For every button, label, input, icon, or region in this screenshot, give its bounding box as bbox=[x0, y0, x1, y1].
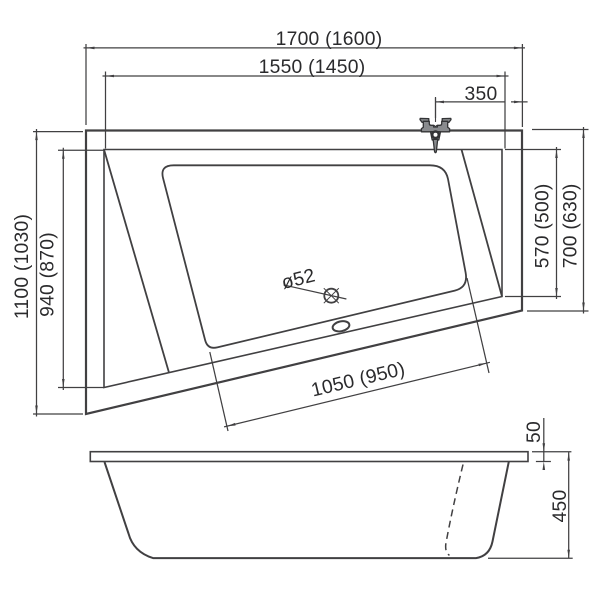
svg-text:1100 (1030): 1100 (1030) bbox=[12, 214, 33, 319]
svg-text:1550 (1450): 1550 (1450) bbox=[259, 57, 366, 78]
svg-text:570 (500): 570 (500) bbox=[533, 183, 554, 268]
svg-text:1700 (1600): 1700 (1600) bbox=[276, 29, 383, 50]
svg-text:450: 450 bbox=[550, 490, 571, 523]
svg-text:50: 50 bbox=[524, 421, 545, 443]
svg-text:350: 350 bbox=[465, 84, 498, 105]
svg-text:940 (870): 940 (870) bbox=[38, 232, 59, 317]
svg-text:700 (630): 700 (630) bbox=[561, 183, 582, 268]
